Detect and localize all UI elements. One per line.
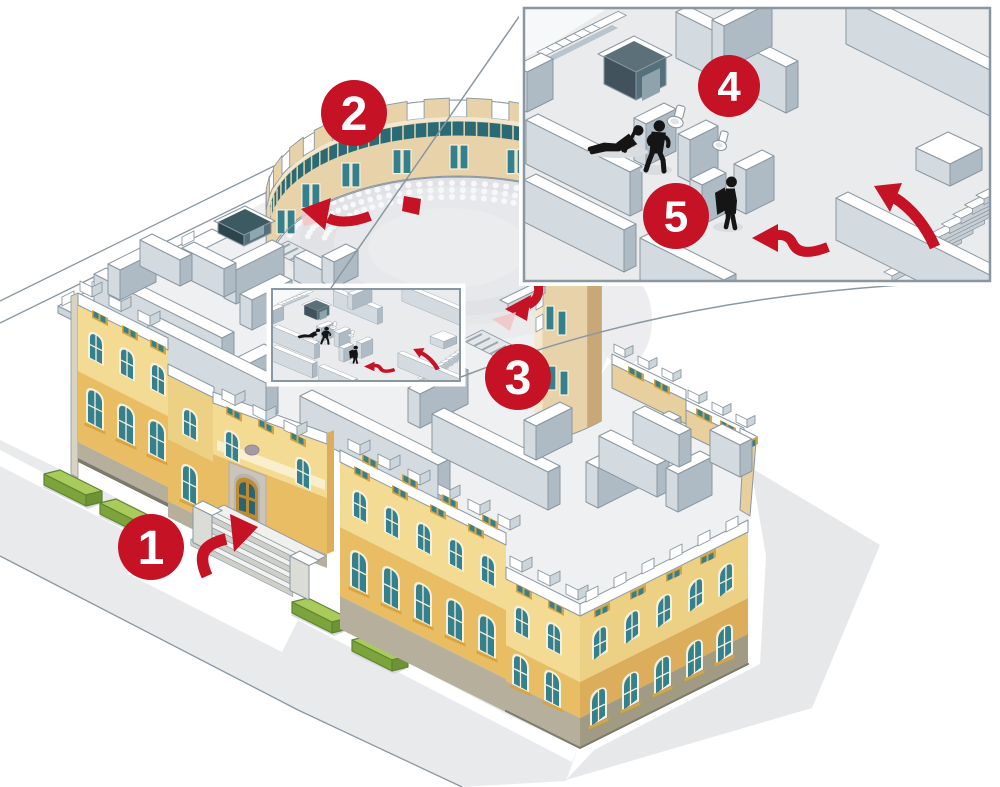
svg-text:3: 3 — [505, 352, 532, 405]
svg-text:4: 4 — [717, 63, 741, 110]
svg-text:2: 2 — [341, 88, 368, 141]
svg-text:5: 5 — [664, 193, 688, 242]
svg-text:1: 1 — [138, 522, 165, 575]
